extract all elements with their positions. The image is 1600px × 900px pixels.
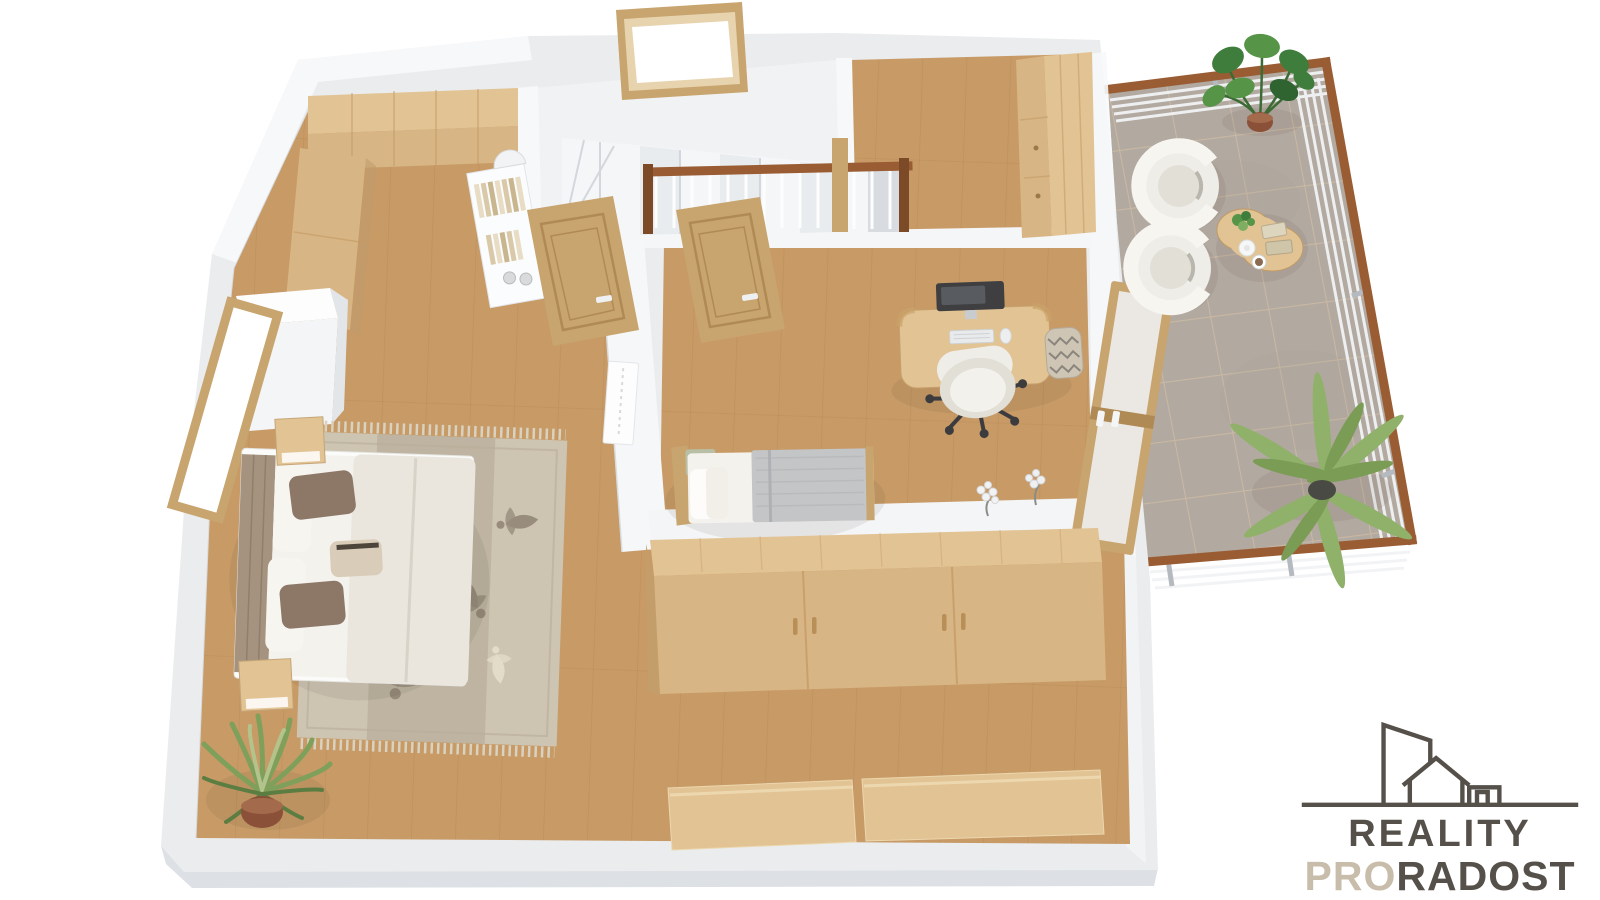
teapot [1239,240,1255,256]
sliding-wardrobe [646,528,1106,696]
storage-basket [1044,327,1083,379]
single-bed [664,442,886,544]
swivel-armchair [1130,228,1218,314]
floor-plan-render: REALITY PRORADOST [0,0,1600,900]
nightstand [275,417,325,465]
logo-text-line1: REALITY [1294,815,1586,855]
nightstand [239,659,294,712]
tall-cabinet [832,138,848,232]
coffee-cup [1252,255,1266,269]
brand-logo: REALITY PRORADOST [1294,705,1586,898]
keyboard [949,329,993,344]
logo-text-rest: RADOST [1396,853,1575,899]
logo-text-accent: PRO [1305,853,1397,899]
skylight-window [616,2,748,100]
logo-text-line2: PRORADOST [1294,855,1586,898]
closet-wardrobe [1016,52,1096,238]
logo-skyline-icon [1294,705,1586,815]
mouse [1000,328,1012,343]
swivel-armchair [1138,146,1226,232]
wall-panel [603,361,639,445]
